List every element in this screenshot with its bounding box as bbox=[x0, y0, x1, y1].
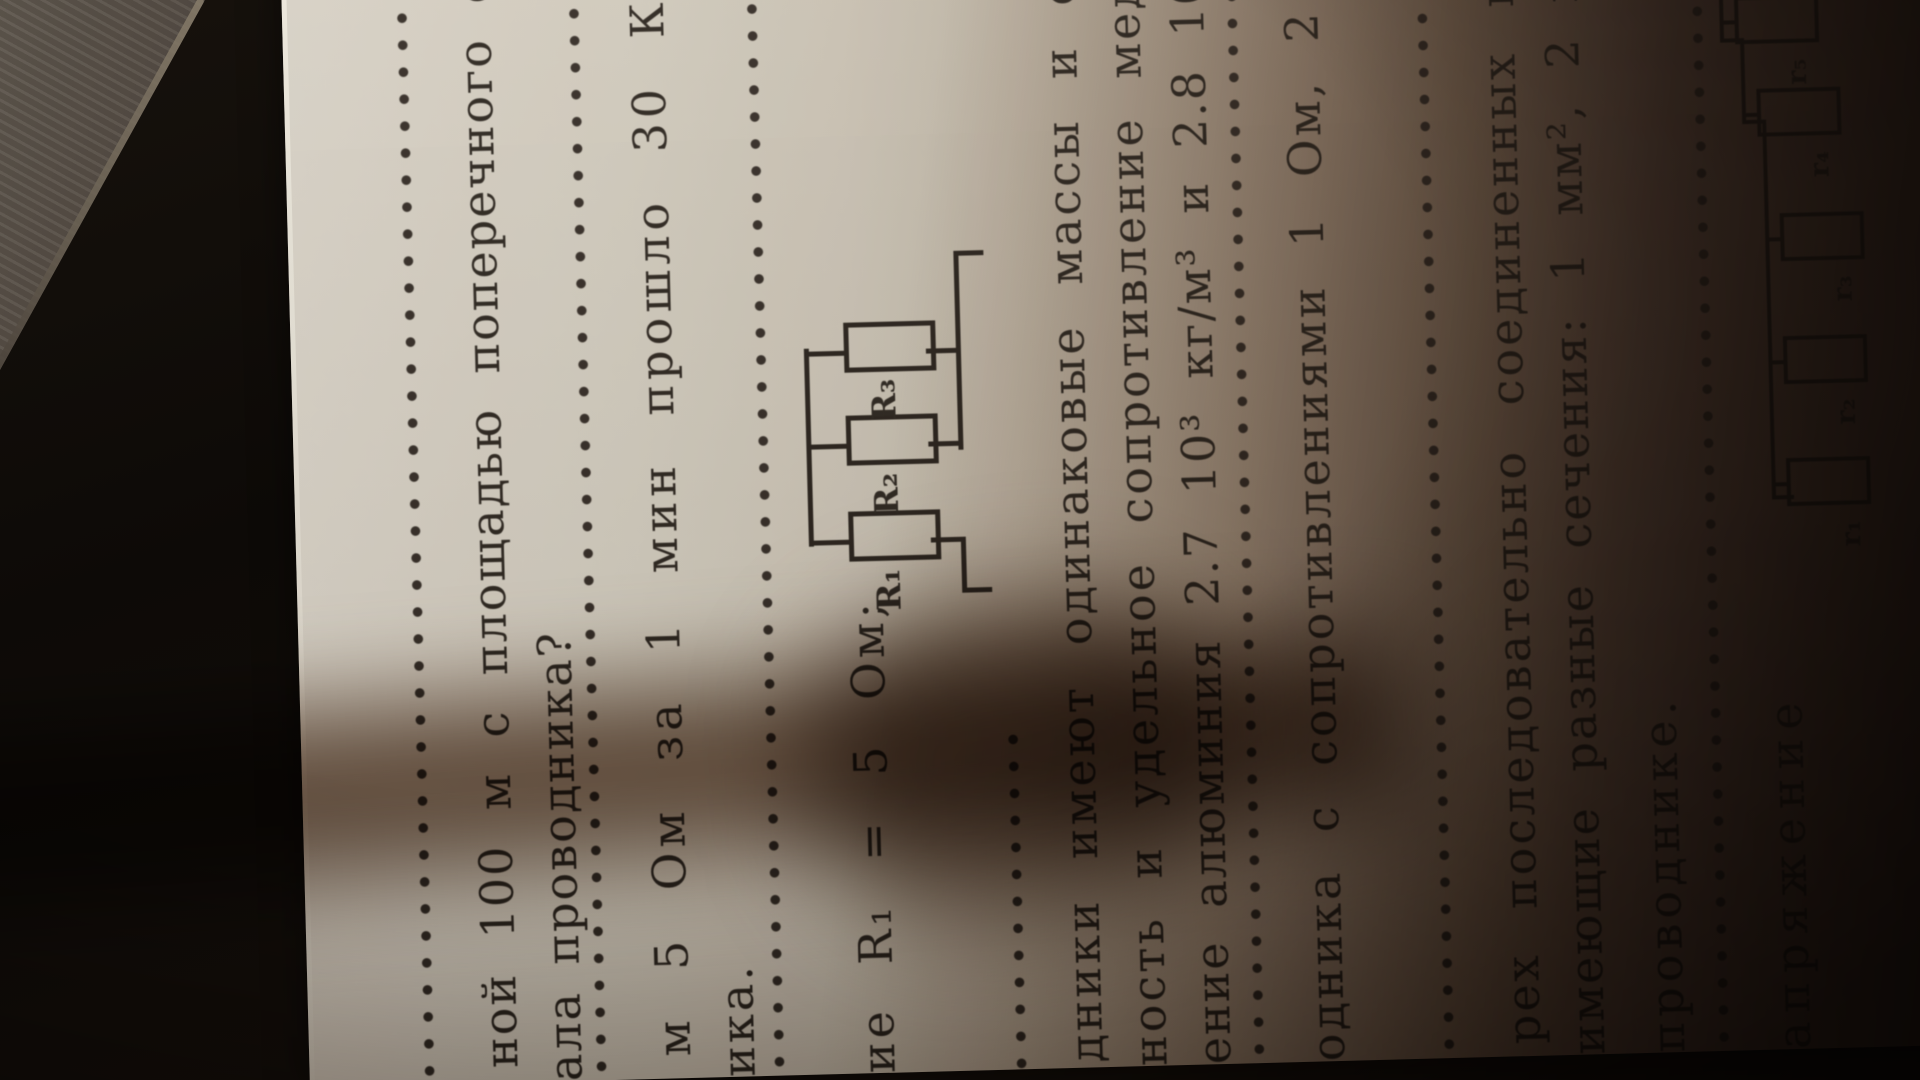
photo-of-textbook-page: ной 100 м с площадью поперечного сечения… bbox=[0, 0, 1920, 1080]
photo-vignette bbox=[0, 0, 1920, 1080]
